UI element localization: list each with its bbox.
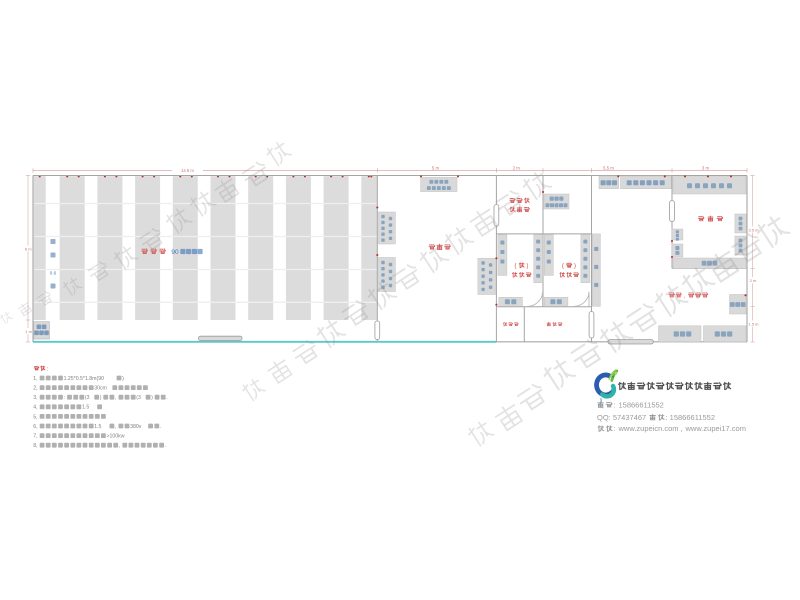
- svg-text:,: ,: [119, 443, 120, 449]
- svg-text:2,: 2,: [33, 386, 37, 392]
- svg-text:: 15866611552: : 15866611552: [666, 413, 716, 422]
- svg-text:3 m: 3 m: [702, 165, 710, 170]
- svg-text:): ): [574, 262, 576, 269]
- svg-text:3.5 m: 3.5 m: [748, 227, 759, 232]
- svg-text:6,: 6,: [33, 424, 37, 430]
- svg-text:www.zupeicn.com: www.zupeicn.com: [618, 424, 679, 433]
- svg-text:1 m: 1 m: [25, 329, 32, 334]
- svg-text:5.5 m: 5.5 m: [603, 165, 614, 170]
- svg-text:0.6: 0.6: [50, 271, 57, 276]
- svg-text:>100kw: >100kw: [107, 434, 125, 440]
- svg-text:3,: 3,: [33, 395, 37, 401]
- svg-text:14.5 m: 14.5 m: [181, 168, 194, 173]
- svg-text:5,: 5,: [33, 414, 37, 420]
- svg-text:1.5 m: 1.5 m: [748, 321, 759, 326]
- svg-text:8,: 8,: [33, 443, 37, 449]
- svg-text:1,: 1,: [33, 376, 37, 382]
- svg-text:1.5: 1.5: [94, 424, 101, 430]
- svg-text::: :: [64, 395, 65, 401]
- svg-text:): ): [526, 262, 528, 269]
- svg-text:380v: 380v: [130, 424, 142, 430]
- svg-text:1.5: 1.5: [82, 405, 89, 411]
- svg-text:15866611552: 15866611552: [619, 400, 664, 409]
- svg-text:.: .: [165, 443, 166, 449]
- svg-text:90: 90: [171, 249, 179, 256]
- svg-text:.: .: [166, 395, 167, 401]
- svg-text:6 m: 6 m: [25, 246, 32, 251]
- svg-text::: :: [614, 424, 616, 433]
- svg-text::: :: [614, 400, 616, 409]
- svg-text:www.zupei17.com: www.zupei17.com: [685, 424, 746, 433]
- svg-text:,: ,: [115, 395, 116, 401]
- svg-text:30cm: 30cm: [94, 386, 107, 392]
- svg-text:7,: 7,: [33, 434, 37, 440]
- svg-text:1.25*0.5*1.8m(90: 1.25*0.5*1.8m(90: [64, 376, 104, 382]
- svg-text:,: ,: [684, 294, 685, 300]
- svg-text:,: ,: [681, 424, 683, 433]
- svg-text:): ): [122, 376, 124, 382]
- svg-text:2 m: 2 m: [750, 278, 757, 283]
- svg-text:4,: 4,: [33, 405, 37, 411]
- svg-text:,: ,: [115, 424, 116, 430]
- svg-text:): ): [100, 395, 102, 401]
- svg-text:QQ: 57437467: QQ: 57437467: [597, 413, 646, 422]
- svg-text:TH: TH: [606, 387, 611, 392]
- svg-text:(3: (3: [136, 395, 141, 401]
- svg-text:): ): [151, 395, 153, 401]
- svg-text:(3: (3: [85, 395, 90, 401]
- svg-text:2 m: 2 m: [513, 165, 521, 170]
- svg-text:5 m: 5 m: [432, 165, 440, 170]
- svg-text:.: .: [160, 424, 161, 430]
